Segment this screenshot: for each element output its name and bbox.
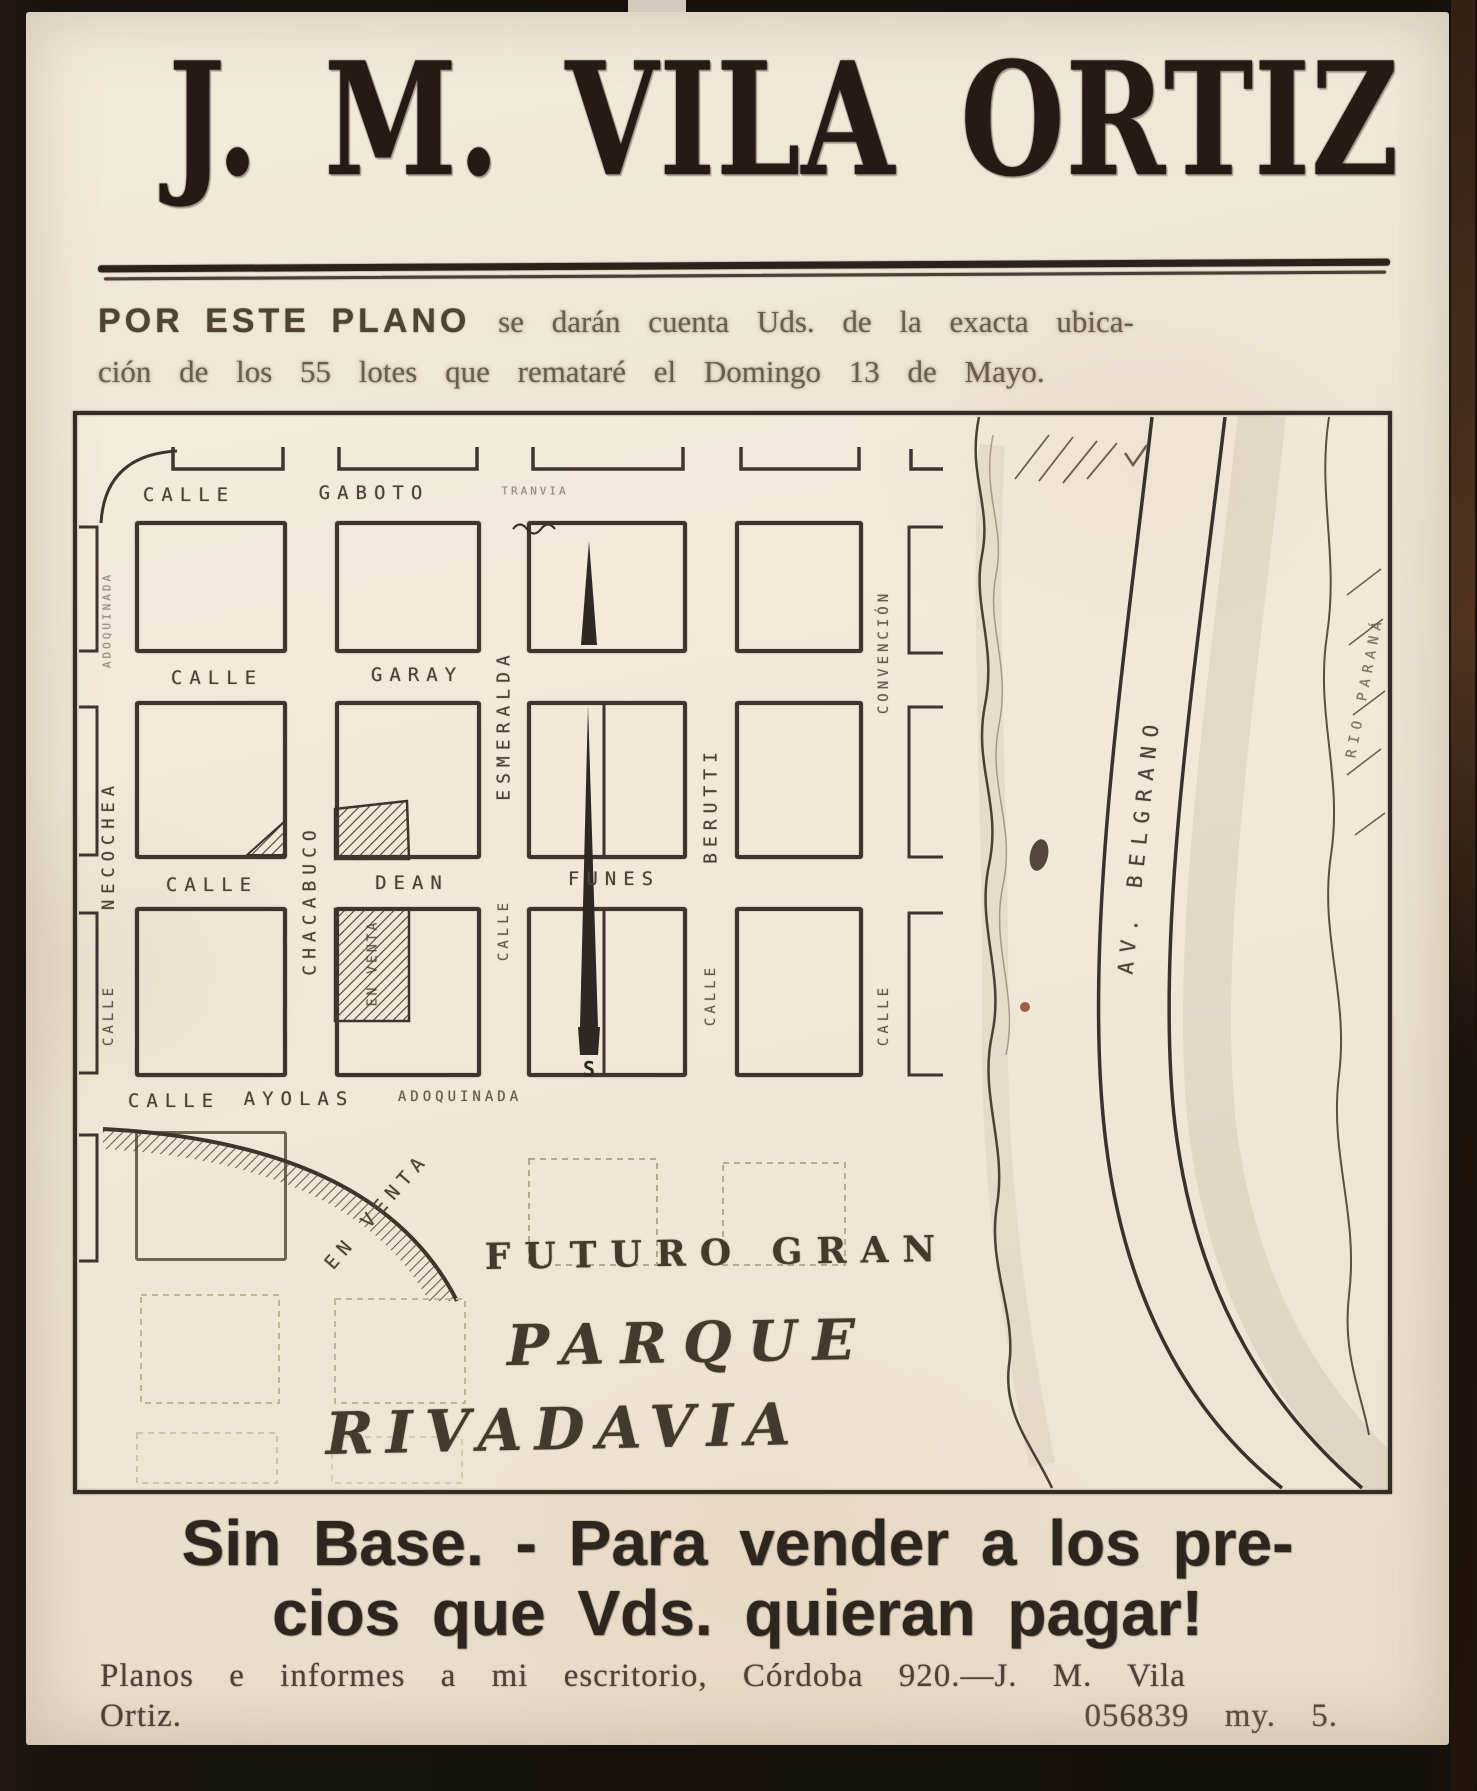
street-label-berutti: BERUTTI — [701, 746, 722, 864]
classified-serial: 056839 my. 5. — [1084, 1696, 1338, 1736]
title-rule-thick — [98, 259, 1390, 273]
north-block-stubs — [173, 447, 943, 469]
ink-blot — [1027, 837, 1051, 872]
street-label-calle: CALLE — [128, 1090, 220, 1112]
contact-block: Planos e informes a mi escritorio, Córdo… — [100, 1656, 1400, 1737]
tram-arrow-north — [581, 541, 597, 645]
tram-arrow-south — [580, 705, 598, 1027]
contact-line2: Ortiz. — [100, 1696, 182, 1736]
page-title: J. M. VILA ORTIZ — [168, 33, 1306, 208]
lot-label-en-venta: EN VENTA — [366, 920, 381, 1007]
east-block-stubs — [909, 527, 943, 1075]
south-marker: S — [583, 1057, 595, 1081]
red-speck — [1020, 1002, 1030, 1012]
street-note-adoquinada: ADOQUINADA — [398, 1089, 522, 1105]
street-label-esmeralda: ESMERALDA — [494, 649, 515, 801]
street-label-necochea: NECOCHEA — [99, 780, 119, 910]
park-boundary-arc — [103, 1129, 457, 1301]
lots-map: CALLE GABOTO TRANVIA CALLE GARAY CALLE D… — [73, 411, 1392, 1494]
street-label-calle: CALLE — [143, 484, 235, 506]
bank-hatching-top — [1015, 435, 1147, 483]
bluff-shading — [989, 445, 1042, 1465]
intro-line1: se darán cuenta Uds. de la exacta ubica- — [498, 304, 1134, 339]
street-label-chacabuco: CHACABUCO — [300, 824, 321, 976]
title-rule-thin — [104, 271, 1386, 281]
scanned-newspaper-ad: J. M. VILA ORTIZ POR ESTE PLANO se darán… — [0, 0, 1477, 1791]
tram-squiggle — [513, 525, 555, 534]
street-label-calle: CALLE — [703, 964, 719, 1026]
street-label-calle: CALLE — [166, 874, 258, 896]
ad-paper: J. M. VILA ORTIZ POR ESTE PLANO se darán… — [26, 12, 1449, 1745]
hatched-lot — [247, 821, 285, 855]
tramway-label: TRANVIA — [501, 485, 568, 498]
intro-lead: POR ESTE PLANO — [98, 302, 470, 340]
shoreline — [1324, 417, 1369, 1435]
street-label-funes: FUNES — [568, 868, 660, 890]
park-text-line2: PARQUE — [506, 1307, 871, 1379]
headline-line2: cios que Vds. quieran pagar! — [26, 1578, 1449, 1648]
street-label-calle: CALLE — [496, 899, 512, 961]
street-label-dean: DEAN — [375, 872, 449, 894]
park-arc-hatching — [103, 1129, 457, 1301]
intro-line2: ción de los 55 lotes que remataré el Dom… — [98, 354, 1045, 389]
street-label-calle: CALLE — [171, 667, 263, 689]
intro-paragraph: POR ESTE PLANO se darán cuenta Uds. de l… — [98, 296, 1388, 395]
street-label-ayolas: AYOLAS — [244, 1088, 355, 1110]
street-label-calle: CALLE — [876, 984, 892, 1046]
street-label-garay: GARAY — [371, 664, 463, 686]
advertiser-name: J. M. VILA ORTIZ — [168, 28, 1399, 211]
street-note-left: ADOQUINADA — [101, 572, 114, 668]
headline-line1: Sin Base. - Para vender a los pre- — [26, 1508, 1449, 1578]
park-text-line3: RIVADAVIA — [325, 1390, 803, 1468]
park-text-line1: FUTURO GRAN — [484, 1228, 949, 1278]
hatched-lot — [335, 801, 409, 859]
tram-arrow-base — [578, 1027, 600, 1055]
street-label-calle: CALLE — [101, 984, 117, 1046]
contact-line1: Planos e informes a mi escritorio, Córdo… — [100, 1656, 1400, 1696]
west-block-stubs — [79, 527, 97, 1261]
sale-headline: Sin Base. - Para vender a los pre- cios … — [26, 1508, 1449, 1649]
street-label-convencion: CONVENCIÓN — [876, 590, 892, 714]
street-label-gaboto: GABOTO — [319, 482, 430, 504]
